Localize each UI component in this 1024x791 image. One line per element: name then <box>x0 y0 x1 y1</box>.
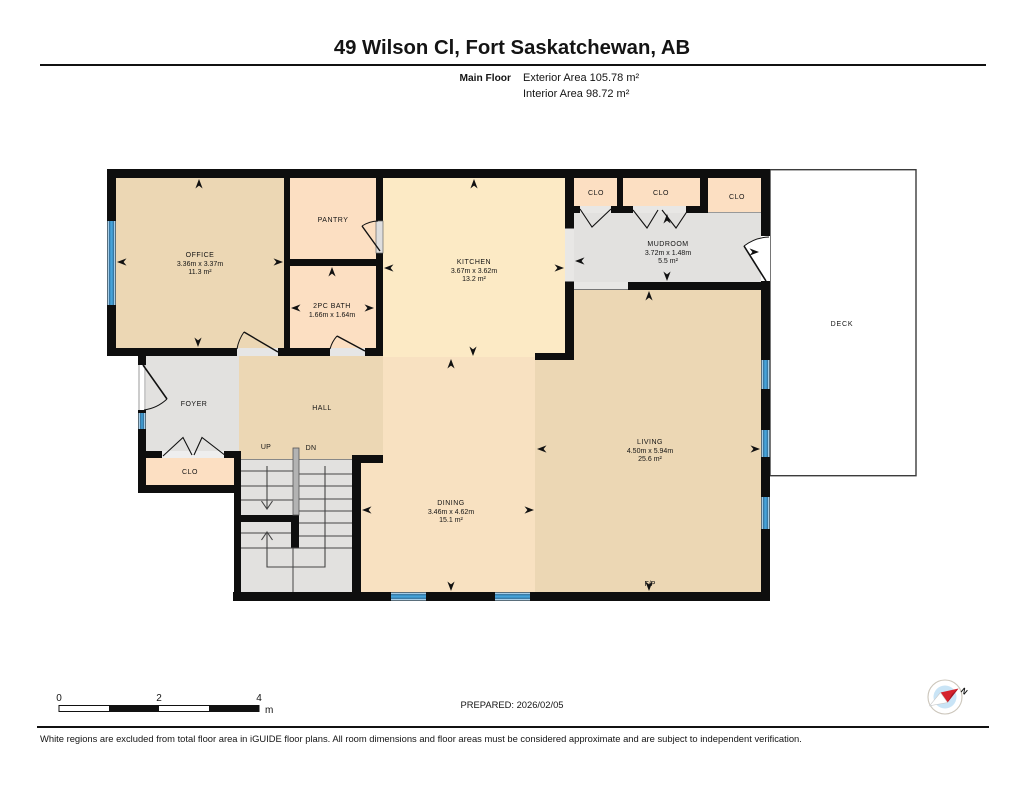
svg-text:PREPARED: 2026/02/05: PREPARED: 2026/02/05 <box>460 699 563 710</box>
svg-text:HALL: HALL <box>312 405 332 412</box>
svg-text:13.2 m²: 13.2 m² <box>462 276 486 283</box>
svg-text:3.46m x 4.62m: 3.46m x 4.62m <box>428 509 474 516</box>
svg-text:m: m <box>265 705 273 716</box>
svg-text:3.67m x 3.62m: 3.67m x 3.62m <box>451 268 497 275</box>
svg-text:15.1 m²: 15.1 m² <box>439 517 463 524</box>
svg-text:49 Wilson Cl, Fort Saskatchewa: 49 Wilson Cl, Fort Saskatchewan, AB <box>334 37 690 59</box>
svg-text:CLO: CLO <box>588 190 604 197</box>
svg-text:Interior Area 98.72 m²: Interior Area 98.72 m² <box>523 88 630 100</box>
svg-text:5.5 m²: 5.5 m² <box>658 258 679 265</box>
svg-text:3.36m x 3.37m: 3.36m x 3.37m <box>177 261 223 268</box>
svg-text:MUDROOM: MUDROOM <box>647 241 688 248</box>
svg-text:OFFICE: OFFICE <box>186 252 215 259</box>
svg-text:F/P: F/P <box>645 581 656 588</box>
svg-text:2PC BATH: 2PC BATH <box>313 303 351 310</box>
svg-text:11.3 m²: 11.3 m² <box>188 269 212 276</box>
svg-text:DN: DN <box>306 445 317 452</box>
svg-text:KITCHEN: KITCHEN <box>457 259 491 266</box>
svg-text:UP: UP <box>261 444 271 451</box>
svg-text:FOYER: FOYER <box>181 401 208 408</box>
svg-text:PANTRY: PANTRY <box>318 217 349 224</box>
svg-text:CLO: CLO <box>729 194 745 201</box>
svg-text:4.50m x 5.94m: 4.50m x 5.94m <box>627 448 673 455</box>
svg-text:Main Floor: Main Floor <box>460 73 512 84</box>
svg-text:CLO: CLO <box>182 469 198 476</box>
svg-text:3.72m x 1.48m: 3.72m x 1.48m <box>645 250 691 257</box>
svg-text:Exterior Area 105.78 m²: Exterior Area 105.78 m² <box>523 72 640 84</box>
svg-text:CLO: CLO <box>653 190 669 197</box>
svg-text:0: 0 <box>56 693 62 704</box>
svg-text:25.6 m²: 25.6 m² <box>638 456 662 463</box>
svg-text:2: 2 <box>156 693 162 704</box>
svg-text:DINING: DINING <box>437 500 465 507</box>
svg-text:LIVING: LIVING <box>637 439 663 446</box>
svg-text:1.66m x 1.64m: 1.66m x 1.64m <box>309 312 355 319</box>
svg-text:White regions are excluded fro: White regions are excluded from total fl… <box>40 733 802 744</box>
svg-text:4: 4 <box>256 693 262 704</box>
svg-text:DECK: DECK <box>831 321 854 328</box>
